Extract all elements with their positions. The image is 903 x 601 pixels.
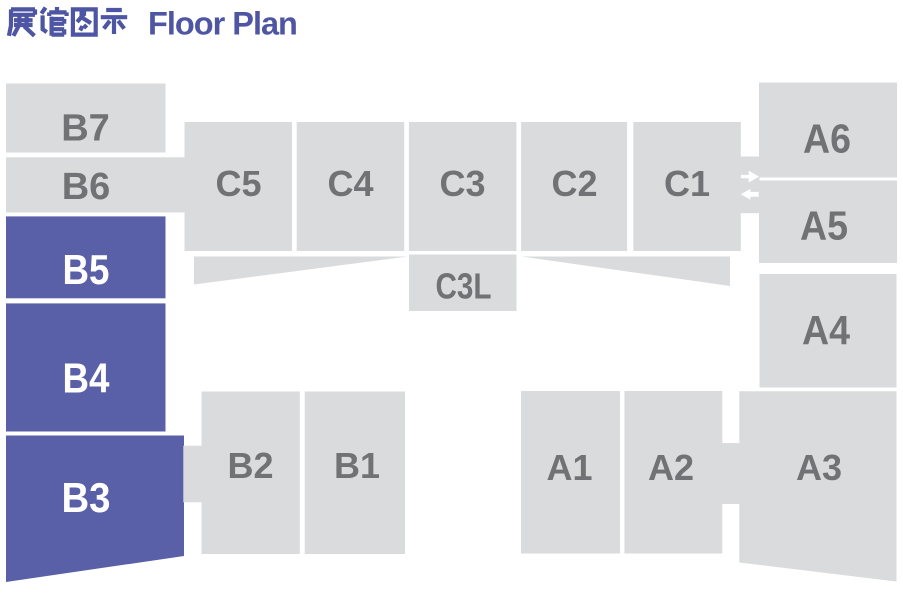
svg-text:C4: C4: [327, 163, 373, 204]
svg-text:Floor Plan: Floor Plan: [148, 6, 297, 42]
svg-text:A3: A3: [796, 447, 842, 488]
svg-text:B4: B4: [63, 354, 111, 401]
svg-text:B3: B3: [62, 474, 111, 521]
svg-text:A4: A4: [802, 307, 850, 353]
svg-text:A6: A6: [803, 116, 851, 162]
svg-text:B7: B7: [61, 107, 110, 149]
svg-text:A2: A2: [648, 447, 694, 488]
svg-text:B2: B2: [227, 445, 273, 486]
svg-text:A1: A1: [546, 447, 592, 488]
svg-text:C1: C1: [664, 163, 710, 204]
svg-text:B1: B1: [334, 445, 380, 486]
svg-text:B5: B5: [63, 246, 110, 293]
svg-text:B6: B6: [62, 166, 111, 208]
svg-text:C2: C2: [551, 163, 597, 204]
svg-text:C3L: C3L: [436, 266, 492, 307]
svg-text:A5: A5: [800, 202, 848, 248]
svg-text:C5: C5: [215, 163, 261, 204]
svg-text:C3: C3: [439, 163, 485, 204]
